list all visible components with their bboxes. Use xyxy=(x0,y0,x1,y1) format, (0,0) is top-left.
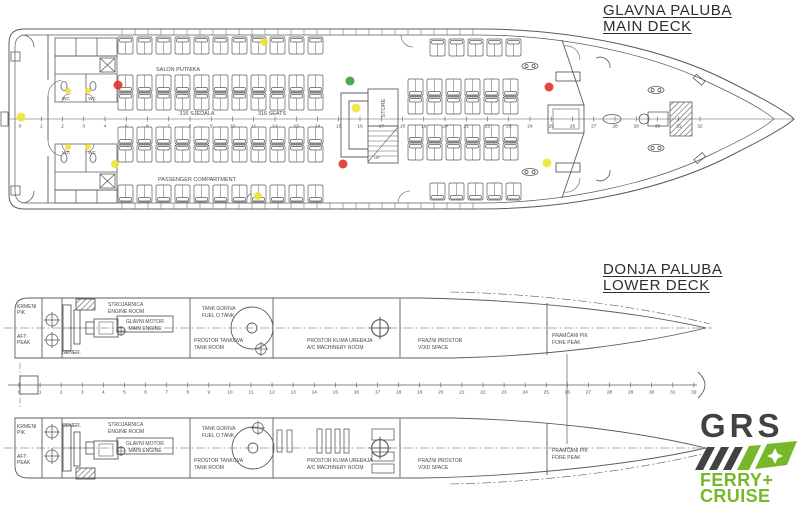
svg-text:5: 5 xyxy=(123,390,126,396)
label-main-engine-hr-s: GLAVNI MOTOR xyxy=(126,441,164,447)
svg-text:19: 19 xyxy=(421,124,427,130)
svg-text:28: 28 xyxy=(607,390,613,396)
svg-text:31: 31 xyxy=(676,124,682,130)
label-main-engine-en: MAIN ENGINE xyxy=(128,326,162,332)
svg-text:23: 23 xyxy=(506,124,512,130)
svg-text:1: 1 xyxy=(40,124,43,130)
label-fore-hr: PRAMČANI PIK xyxy=(552,332,589,339)
label-tank-en: TANK ROOM xyxy=(194,345,224,351)
svg-text:18: 18 xyxy=(396,390,402,396)
label-fore-en-s: FORE PEAK xyxy=(552,455,581,461)
svg-text:6: 6 xyxy=(144,390,147,396)
label-seats-hr: 316 SJEDALA xyxy=(179,111,214,117)
svg-text:9: 9 xyxy=(210,124,213,130)
label-fuel-en-s: FUEL O.TANK xyxy=(202,433,235,439)
svg-text:2: 2 xyxy=(60,390,63,396)
svg-text:25: 25 xyxy=(544,390,550,396)
svg-text:28: 28 xyxy=(612,124,618,130)
svg-text:27: 27 xyxy=(586,390,592,396)
main-deck-title-en: MAIN DECK xyxy=(603,19,732,35)
stair-landing xyxy=(341,93,368,157)
label-ac-en: A/C MACHINERY ROOM xyxy=(307,345,364,351)
label-aft-peak-en2: PEAK xyxy=(17,340,31,346)
svg-text:29: 29 xyxy=(628,390,634,396)
svg-text:11: 11 xyxy=(251,124,256,130)
lower-deck-title-hr: DONJA PALUBA xyxy=(603,262,722,278)
svg-text:3: 3 xyxy=(82,124,85,130)
label-engine-en: ENGINE ROOM xyxy=(108,309,144,315)
svg-text:30: 30 xyxy=(649,390,655,396)
svg-text:2: 2 xyxy=(61,124,64,130)
label-main-engine-en-s: MAIN ENGINE xyxy=(128,448,162,454)
svg-text:8: 8 xyxy=(186,390,189,396)
svg-text:17: 17 xyxy=(379,124,385,130)
label-ac-en-s: A/C MACHINERY ROOM xyxy=(307,465,364,471)
label-tank-en-s: TANK ROOM xyxy=(194,465,224,471)
svg-text:27: 27 xyxy=(591,124,597,130)
logo-brand-text: GRS xyxy=(687,412,799,440)
label-engine-hr-s: STROJARNICA xyxy=(108,422,144,428)
label-fuel-en: FUEL O.TANK xyxy=(202,313,235,319)
svg-text:25: 25 xyxy=(549,124,555,130)
label-fore-en: FORE PEAK xyxy=(552,340,581,346)
label-engine-en-s: ENGINE ROOM xyxy=(108,429,144,435)
label-wc-2: WC xyxy=(88,96,96,101)
svg-text:0: 0 xyxy=(19,124,22,130)
label-ac-hr-s: PROSTOR KLIMA UREĐAJA xyxy=(307,458,373,464)
label-tank-hr: PROSTOR TANKOVA xyxy=(194,338,244,344)
svg-text:29: 29 xyxy=(634,124,640,130)
label-wc-1: WC xyxy=(62,96,70,101)
svg-text:5: 5 xyxy=(125,124,128,130)
lower-deck-plan: 0123456789101112131415161718192021222324… xyxy=(4,292,712,484)
lower-deck-title-en: LOWER DECK xyxy=(603,278,722,294)
svg-text:26: 26 xyxy=(565,390,571,396)
deck-plan-page: 0123456789101112131415161718192021222324… xyxy=(0,0,800,506)
svg-text:6: 6 xyxy=(146,124,149,130)
svg-text:4: 4 xyxy=(102,390,105,396)
main-deck-title: GLAVNA PALUBA MAIN DECK xyxy=(603,3,732,35)
svg-text:30: 30 xyxy=(655,124,661,130)
svg-text:11: 11 xyxy=(248,390,253,396)
label-void-hr: PRAZNI PROSTOR xyxy=(418,338,463,344)
main-deck-plan: 0123456789101112131415161718192021222324… xyxy=(1,29,794,209)
label-fuel-hr: TANK GORIVA xyxy=(202,306,236,312)
svg-text:26: 26 xyxy=(570,124,576,130)
svg-text:10: 10 xyxy=(230,124,236,130)
label-gener: GENER. xyxy=(62,350,81,356)
svg-text:0: 0 xyxy=(18,390,21,396)
svg-text:12: 12 xyxy=(272,124,278,130)
ship-deck-plan-drawing: 0123456789101112131415161718192021222324… xyxy=(0,0,800,506)
svg-text:21: 21 xyxy=(459,390,465,396)
svg-text:32: 32 xyxy=(691,390,697,396)
svg-text:12: 12 xyxy=(269,390,275,396)
label-wc-4: WC xyxy=(88,150,96,155)
svg-text:15: 15 xyxy=(333,390,339,396)
svg-text:31: 31 xyxy=(670,390,676,396)
svg-text:7: 7 xyxy=(165,390,168,396)
svg-text:8: 8 xyxy=(189,124,192,130)
label-ac-hr: PROSTOR KLIMA UREĐAJA xyxy=(307,338,373,344)
label-gener-s: GENER. xyxy=(62,423,81,429)
svg-text:10: 10 xyxy=(227,390,233,396)
label-tank-hr-s: PROSTOR TANKOVA xyxy=(194,458,244,464)
logo-flag-icon xyxy=(691,441,797,471)
svg-text:17: 17 xyxy=(375,390,381,396)
label-main-engine-hr: GLAVNI MOTOR xyxy=(126,319,164,325)
svg-text:19: 19 xyxy=(417,390,423,396)
frame-scale-lower: 0123456789101112131415161718192021222324… xyxy=(18,383,697,396)
label-void-en-s: VOID SPACE xyxy=(418,465,449,471)
svg-text:16: 16 xyxy=(354,390,360,396)
label-fore-hr-s: PRAMČANI PIK xyxy=(552,447,589,454)
label-seats-en: 316 SEATS xyxy=(258,111,287,117)
svg-text:16: 16 xyxy=(357,124,363,130)
logo-line2-text: CRUISE xyxy=(687,488,799,504)
label-wc-3: WC xyxy=(62,150,70,155)
svg-text:23: 23 xyxy=(501,390,507,396)
label-void-hr-s: PRAZNI PROSTOR xyxy=(418,458,463,464)
svg-text:24: 24 xyxy=(527,124,533,130)
svg-text:22: 22 xyxy=(480,390,486,396)
svg-text:24: 24 xyxy=(522,390,528,396)
label-salon: SALON PUTNIKA xyxy=(156,67,200,73)
grs-ferry-cruise-logo: GRS FERRY+ CRUISE xyxy=(687,412,799,504)
svg-text:22: 22 xyxy=(485,124,491,130)
label-aft-peak-hr2-s: PIK xyxy=(17,430,26,436)
svg-text:14: 14 xyxy=(315,124,321,130)
svg-text:15: 15 xyxy=(336,124,342,130)
label-engine-hr: STROJARNICA xyxy=(108,302,144,308)
svg-text:3: 3 xyxy=(81,390,84,396)
main-deck-title-hr: GLAVNA PALUBA xyxy=(603,3,732,19)
svg-text:9: 9 xyxy=(207,390,210,396)
svg-text:18: 18 xyxy=(400,124,406,130)
svg-text:14: 14 xyxy=(312,390,318,396)
svg-text:7: 7 xyxy=(167,124,170,130)
svg-text:13: 13 xyxy=(294,124,300,130)
svg-text:32: 32 xyxy=(697,124,703,130)
label-void-en: VOID SPACE xyxy=(418,345,449,351)
svg-text:4: 4 xyxy=(104,124,107,130)
label-aft-peak-en2-s: PEAK xyxy=(17,460,31,466)
svg-text:20: 20 xyxy=(438,390,444,396)
label-passenger-compartment: PASSENGER COMPARTMENT xyxy=(158,177,237,183)
svg-text:13: 13 xyxy=(290,390,296,396)
stairs xyxy=(368,126,398,163)
label-store: STORE xyxy=(381,98,387,117)
label-fuel-hr-s: TANK GORIVA xyxy=(202,426,236,432)
label-aft-peak-hr2: PIK xyxy=(17,310,26,316)
label-up: UP xyxy=(374,155,380,160)
lower-deck-title: DONJA PALUBA LOWER DECK xyxy=(603,262,722,294)
svg-text:20: 20 xyxy=(442,124,448,130)
svg-text:1: 1 xyxy=(39,390,42,396)
svg-text:21: 21 xyxy=(464,124,470,130)
